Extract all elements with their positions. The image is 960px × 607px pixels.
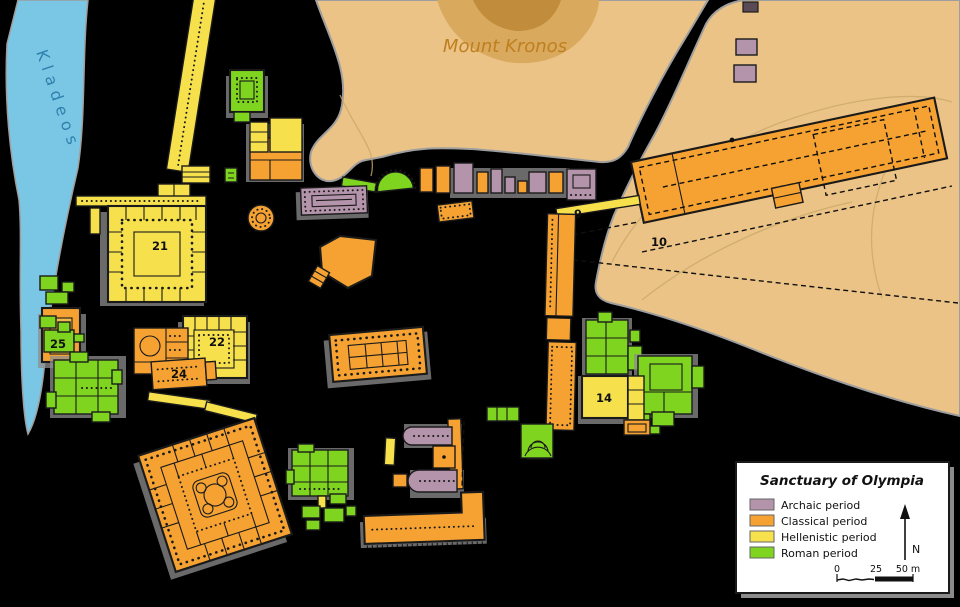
leonidaion [131,418,293,580]
treasury-8 [529,172,546,193]
south-stoa [359,492,487,548]
way-segment-1 [148,392,211,410]
sw-house-4 [346,506,356,516]
map-canvas: Kladeos Mount Kronos [0,0,960,607]
treasury-6 [505,177,515,193]
pelopion [308,236,376,288]
scale-tick-0: 0 [834,564,840,575]
map-label-25: 25 [50,337,66,351]
treasury-of-gela [567,169,596,200]
north-label: N [912,543,920,556]
legend: Sanctuary of Olympia Archaic period Clas… [736,462,954,598]
treasury-5 [491,169,502,193]
metroon [437,201,474,222]
kladeos-baths-annex-3 [92,412,110,422]
nw-building-complex [246,118,304,182]
philippeion [248,205,274,231]
building-24-annex [205,361,216,380]
echo-stoa-gate [546,318,571,341]
legend-swatch-archaic [750,499,774,510]
building-14 [578,376,650,435]
kronion-outline [230,70,264,112]
wb-green-4 [40,316,56,328]
kladeos-baths-outline [54,360,118,414]
small-roman-building-north [225,168,237,182]
wb-green-5 [58,322,70,332]
map-label-9: 9 [574,207,582,221]
treasury-2 [436,166,450,193]
sw-house-1 [302,506,320,518]
green-bar-building [487,407,519,421]
treasury-4 [477,172,488,193]
sw-baths-annex-2 [286,470,294,484]
wb-green-2 [62,282,74,292]
hill-label: Mount Kronos [443,36,567,57]
map-label-14: 14 [596,391,612,405]
sw-house-3 [306,520,320,530]
legend-swatch-hellenistic [750,531,774,542]
legend-label-hellenistic: Hellenistic period [781,531,877,544]
map-label-22: 22 [209,335,225,349]
south-stoa-outline [363,492,485,544]
sw-baths-annex-3 [330,494,346,504]
wb-green-3 [46,292,68,304]
scale-bar-right [875,577,913,582]
map-label-24: 24 [171,367,187,381]
nw-complex-cells [250,122,268,152]
green-apsidal-building [521,424,553,459]
legend-label-roman: Roman period [781,547,858,560]
map-label-10: 10 [651,235,667,249]
bouleuterion-center-dot [442,455,446,459]
gymnasium-stoa [158,0,216,198]
kladeos-baths-annex-4 [112,370,122,384]
nymphaion-exedra [374,168,416,192]
nero-house-annex-1 [692,366,704,388]
stadium-point-marker [730,138,735,143]
sw-house-2 [324,508,344,522]
map-label-21: 21 [152,239,168,253]
treasury-3 [454,163,473,193]
east-roman-baths [582,312,642,378]
wb-green-6 [74,334,84,342]
treasuries-row [341,163,596,200]
small-orange-square [393,474,407,487]
bouleuterion [384,419,464,498]
nero-house-annex-2 [652,412,674,426]
green-bar-outline [487,407,519,421]
legend-title: Sanctuary of Olympia [760,473,924,489]
gymnasium-end-hall [182,166,210,183]
pelopion-enclosure [320,236,376,288]
building-14-east-cells [628,376,644,420]
legend-label-classical: Classical period [781,515,867,528]
small-yellow-bar [384,438,395,465]
treasury-1 [420,168,433,192]
processional-way [148,392,258,423]
legend-label-archaic: Archaic period [781,499,860,512]
temple-of-hera [296,186,369,220]
legend-swatch-roman [750,547,774,558]
exedra-semicircle [376,170,414,192]
echo-stoa [542,214,580,431]
southwest-baths [286,444,356,530]
nw-complex-upper [270,118,302,152]
kronion-baths [226,70,268,122]
kladeos-baths-annex-1 [70,352,88,362]
nero-house-outline [638,356,692,414]
sw-baths-annex-1 [298,444,314,452]
legend-swatch-classical [750,515,774,526]
ne-building-0 [743,2,758,12]
olympia-site-map: Kladeos Mount Kronos [0,0,960,607]
east-baths-outline [586,320,628,374]
ne-building-1 [736,39,757,55]
scale-tick-50: 50 m [896,564,920,575]
east-baths-annex-3 [630,330,640,342]
scale-tick-25: 25 [870,564,882,575]
gymnasium-strip [166,0,216,172]
ne-building-2 [734,65,756,82]
east-baths-annex-1 [598,312,612,322]
kladeos-baths [46,352,126,422]
wb-green-1 [40,276,58,290]
treasury-7 [518,181,527,193]
palaestra [76,196,206,306]
palaestra-west-bar [90,208,100,234]
kladeos-baths-annex-2 [46,392,56,408]
temple-of-zeus [323,327,431,389]
kronion-annex [234,112,250,122]
treasury-9 [549,172,563,193]
